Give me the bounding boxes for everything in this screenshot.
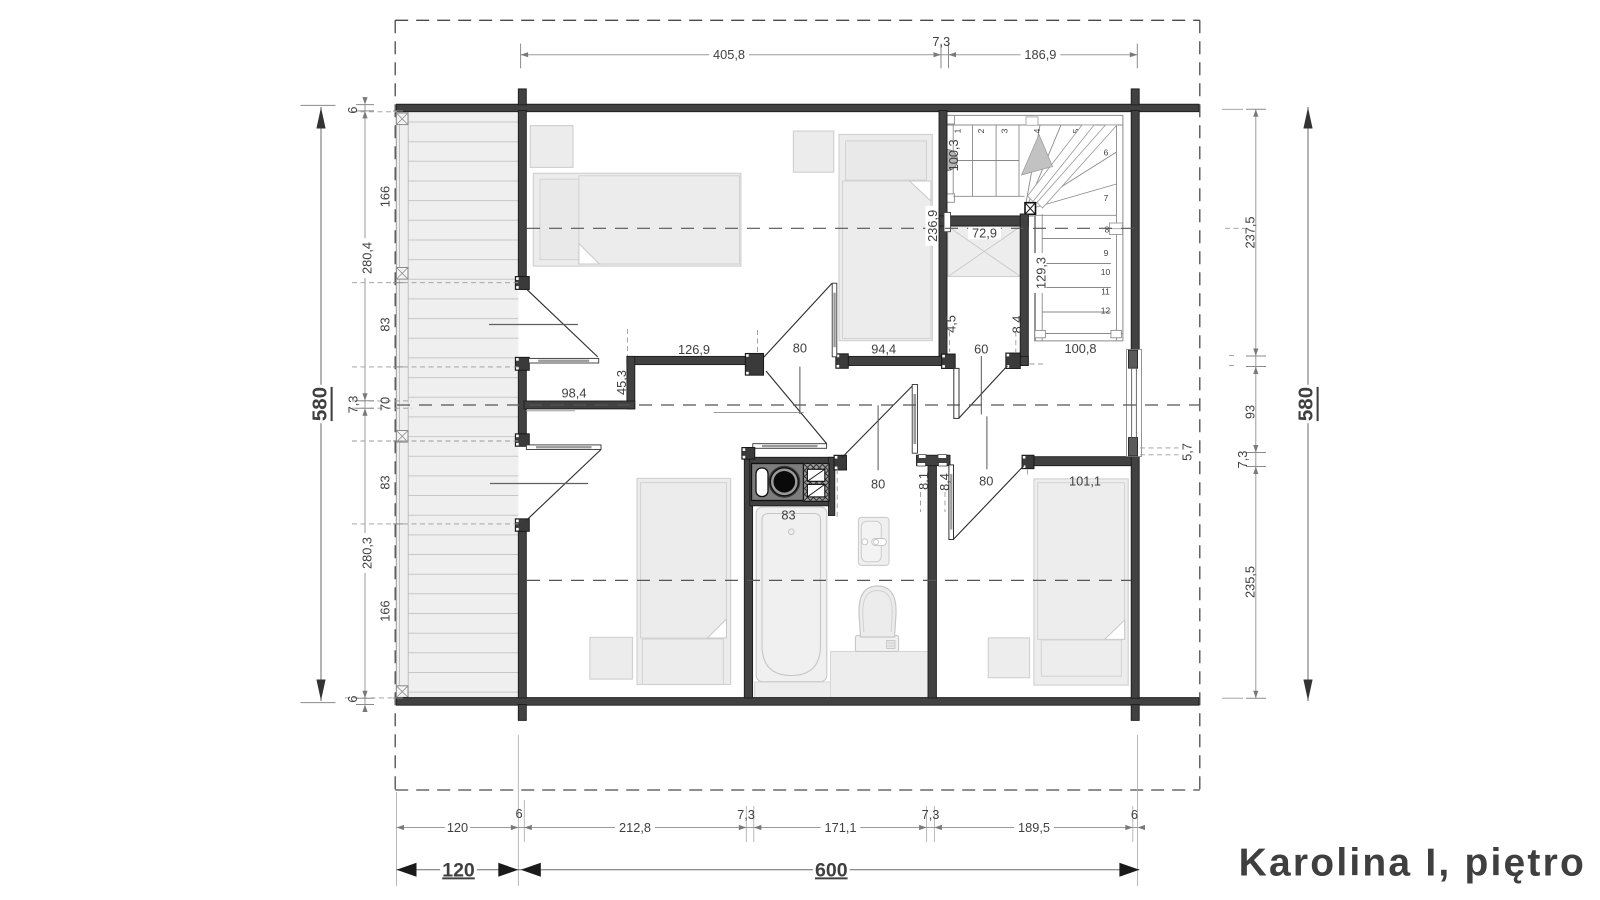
svg-text:8,4: 8,4 bbox=[936, 473, 951, 491]
svg-text:100,8: 100,8 bbox=[1064, 341, 1096, 356]
svg-text:580: 580 bbox=[308, 387, 331, 421]
svg-text:8,1: 8,1 bbox=[915, 472, 930, 490]
svg-text:80: 80 bbox=[979, 473, 993, 488]
svg-text:6: 6 bbox=[1104, 148, 1109, 158]
svg-text:166: 166 bbox=[377, 600, 392, 621]
svg-text:237,5: 237,5 bbox=[1242, 216, 1257, 248]
svg-text:405,8: 405,8 bbox=[713, 47, 745, 62]
svg-text:83: 83 bbox=[377, 475, 392, 489]
svg-text:94,4: 94,4 bbox=[871, 341, 896, 356]
svg-text:6: 6 bbox=[1131, 807, 1138, 822]
svg-text:212,8: 212,8 bbox=[619, 820, 651, 835]
svg-text:12: 12 bbox=[1101, 306, 1111, 316]
svg-text:1: 1 bbox=[953, 128, 963, 133]
svg-text:235,5: 235,5 bbox=[1242, 566, 1257, 598]
svg-text:7: 7 bbox=[1104, 193, 1109, 203]
svg-text:98,4: 98,4 bbox=[562, 385, 587, 400]
svg-text:60: 60 bbox=[974, 342, 988, 357]
svg-text:129,3: 129,3 bbox=[1033, 257, 1048, 289]
svg-text:7,3: 7,3 bbox=[922, 807, 940, 822]
svg-text:3: 3 bbox=[1000, 128, 1010, 133]
svg-text:600: 600 bbox=[815, 859, 848, 881]
svg-text:83: 83 bbox=[377, 317, 392, 331]
svg-text:80: 80 bbox=[871, 476, 885, 491]
svg-text:80: 80 bbox=[793, 340, 807, 355]
svg-text:166: 166 bbox=[377, 186, 392, 207]
svg-text:280,4: 280,4 bbox=[359, 242, 374, 274]
svg-text:6: 6 bbox=[344, 695, 359, 702]
svg-text:7,3: 7,3 bbox=[1234, 451, 1249, 469]
svg-text:8,4: 8,4 bbox=[1009, 316, 1024, 334]
svg-text:10: 10 bbox=[1101, 267, 1111, 277]
svg-text:120: 120 bbox=[442, 859, 475, 881]
svg-text:7,3: 7,3 bbox=[345, 396, 360, 414]
svg-text:6: 6 bbox=[344, 106, 359, 113]
svg-text:101,1: 101,1 bbox=[1069, 473, 1101, 488]
svg-text:72,9: 72,9 bbox=[972, 225, 997, 240]
svg-text:7,3: 7,3 bbox=[932, 34, 950, 49]
svg-text:8: 8 bbox=[1105, 225, 1110, 235]
svg-text:7,3: 7,3 bbox=[737, 807, 755, 822]
svg-text:126,9: 126,9 bbox=[678, 342, 710, 357]
svg-text:236,9: 236,9 bbox=[925, 210, 940, 242]
svg-text:9: 9 bbox=[1104, 248, 1109, 258]
svg-text:171,1: 171,1 bbox=[824, 820, 856, 835]
svg-text:4: 4 bbox=[1032, 128, 1042, 133]
svg-text:2: 2 bbox=[976, 128, 986, 133]
svg-text:Karolina I, piętro: Karolina I, piętro bbox=[1239, 842, 1586, 885]
svg-text:580: 580 bbox=[1294, 387, 1317, 421]
svg-text:189,5: 189,5 bbox=[1018, 820, 1050, 835]
svg-text:100,3: 100,3 bbox=[946, 139, 961, 171]
svg-text:186,9: 186,9 bbox=[1024, 47, 1056, 62]
svg-text:280,3: 280,3 bbox=[359, 537, 374, 569]
svg-text:6: 6 bbox=[515, 806, 522, 821]
svg-text:4,5: 4,5 bbox=[943, 315, 958, 333]
svg-text:45,3: 45,3 bbox=[614, 370, 629, 395]
svg-text:5,7: 5,7 bbox=[1179, 443, 1194, 461]
svg-text:93: 93 bbox=[1242, 405, 1257, 419]
svg-text:83: 83 bbox=[781, 507, 795, 522]
svg-text:120: 120 bbox=[447, 820, 468, 835]
svg-text:11: 11 bbox=[1101, 287, 1110, 297]
svg-text:70: 70 bbox=[377, 397, 392, 411]
